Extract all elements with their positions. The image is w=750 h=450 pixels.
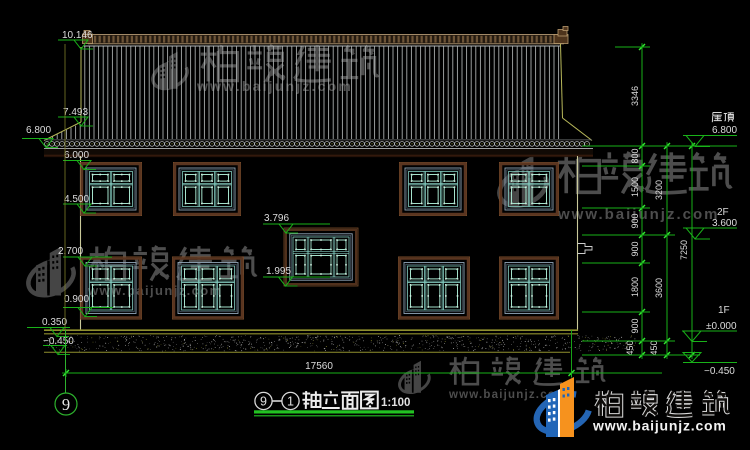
svg-text:3200: 3200 — [654, 180, 664, 200]
svg-text:−0.450: −0.450 — [704, 366, 735, 377]
svg-text:6.800: 6.800 — [26, 125, 51, 136]
svg-text:6.000: 6.000 — [64, 150, 89, 161]
svg-text:7250: 7250 — [679, 240, 689, 260]
svg-text:450: 450 — [649, 340, 659, 355]
svg-text:1.995: 1.995 — [266, 266, 291, 277]
svg-text:3600: 3600 — [654, 278, 664, 298]
svg-text:10.146: 10.146 — [62, 30, 93, 41]
svg-text:9: 9 — [62, 395, 70, 414]
svg-text:1: 1 — [287, 395, 294, 409]
svg-text:3.600: 3.600 — [712, 218, 737, 229]
svg-text:1500: 1500 — [630, 177, 640, 197]
svg-text:3346: 3346 — [630, 86, 640, 106]
svg-text:9: 9 — [260, 395, 267, 409]
svg-text:2.700: 2.700 — [58, 246, 83, 257]
svg-text:900: 900 — [630, 241, 640, 256]
svg-text:0.350: 0.350 — [42, 317, 67, 328]
svg-text:www.baijunjz.com: www.baijunjz.com — [196, 78, 353, 94]
svg-text:0.900: 0.900 — [64, 294, 89, 305]
svg-text:1F: 1F — [718, 305, 730, 316]
svg-text:450: 450 — [625, 340, 635, 355]
svg-text:2F: 2F — [717, 207, 729, 218]
svg-text:7.493: 7.493 — [63, 107, 88, 118]
svg-text:800: 800 — [630, 148, 640, 163]
svg-text:900: 900 — [630, 213, 640, 228]
svg-text:www.baijunjz.com: www.baijunjz.com — [592, 418, 727, 434]
svg-text:6.800: 6.800 — [712, 125, 737, 136]
svg-text:1:100: 1:100 — [381, 397, 410, 409]
svg-text:17560: 17560 — [305, 361, 333, 372]
svg-text:900: 900 — [630, 318, 640, 333]
svg-text:4.500: 4.500 — [64, 194, 89, 205]
svg-text:±0.000: ±0.000 — [706, 321, 737, 332]
svg-text:3.796: 3.796 — [264, 213, 289, 224]
svg-text:1800: 1800 — [630, 277, 640, 297]
